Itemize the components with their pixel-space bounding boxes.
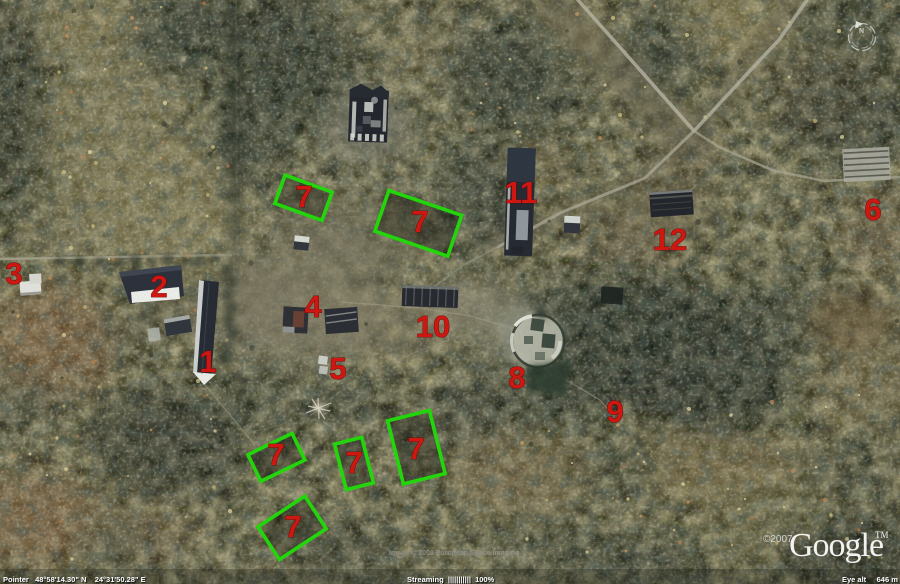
svg-text:Eye alt 646 m: Eye alt 646 m <box>842 575 898 584</box>
svg-text:2: 2 <box>150 269 167 304</box>
svg-text:12: 12 <box>653 222 687 257</box>
svg-text:7: 7 <box>284 509 301 544</box>
svg-text:7: 7 <box>295 179 312 214</box>
svg-text:10: 10 <box>416 309 450 344</box>
svg-text:Image © 2009 European Space Im: Image © 2009 European Space Imaging <box>389 549 519 557</box>
svg-text:Pointer 48°58'14.30" N 24: Pointer 48°58'14.30" N 24°31'50.28" E <box>3 575 146 584</box>
svg-text:1: 1 <box>199 344 216 379</box>
svg-text:7: 7 <box>345 445 362 480</box>
svg-text:Streaming ||||||||||| 100%: Streaming ||||||||||| 100% <box>407 575 495 584</box>
svg-text:3: 3 <box>5 256 22 291</box>
svg-text:7: 7 <box>267 437 284 472</box>
svg-text:8: 8 <box>508 360 525 395</box>
svg-text:N: N <box>859 28 864 35</box>
svg-text:7: 7 <box>407 431 424 466</box>
svg-text:TM: TM <box>875 530 889 540</box>
svg-text:7: 7 <box>411 204 428 239</box>
svg-text:11: 11 <box>505 175 538 210</box>
svg-text:6: 6 <box>864 192 881 227</box>
svg-text:4: 4 <box>304 289 322 324</box>
svg-text:5: 5 <box>329 351 346 386</box>
svg-text:Google: Google <box>789 527 883 564</box>
svg-text:9: 9 <box>606 394 623 429</box>
